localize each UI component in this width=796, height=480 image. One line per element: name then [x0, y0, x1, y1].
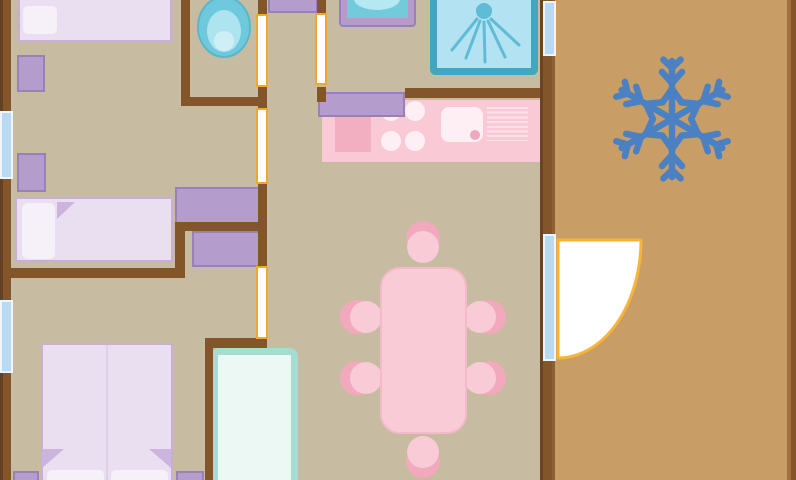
shower-spray-3 [484, 22, 485, 62]
sheet-fold-middle-bed [57, 202, 75, 219]
shower-head [476, 3, 492, 19]
snowflake-icon [616, 60, 727, 179]
terrace-door-swing [558, 240, 641, 358]
floor-plan [0, 0, 796, 480]
sheet-fold-double-right [149, 449, 171, 468]
fixtures-overlay [0, 0, 796, 480]
sheet-fold-double-left [42, 449, 64, 468]
toilet-water [214, 31, 234, 51]
